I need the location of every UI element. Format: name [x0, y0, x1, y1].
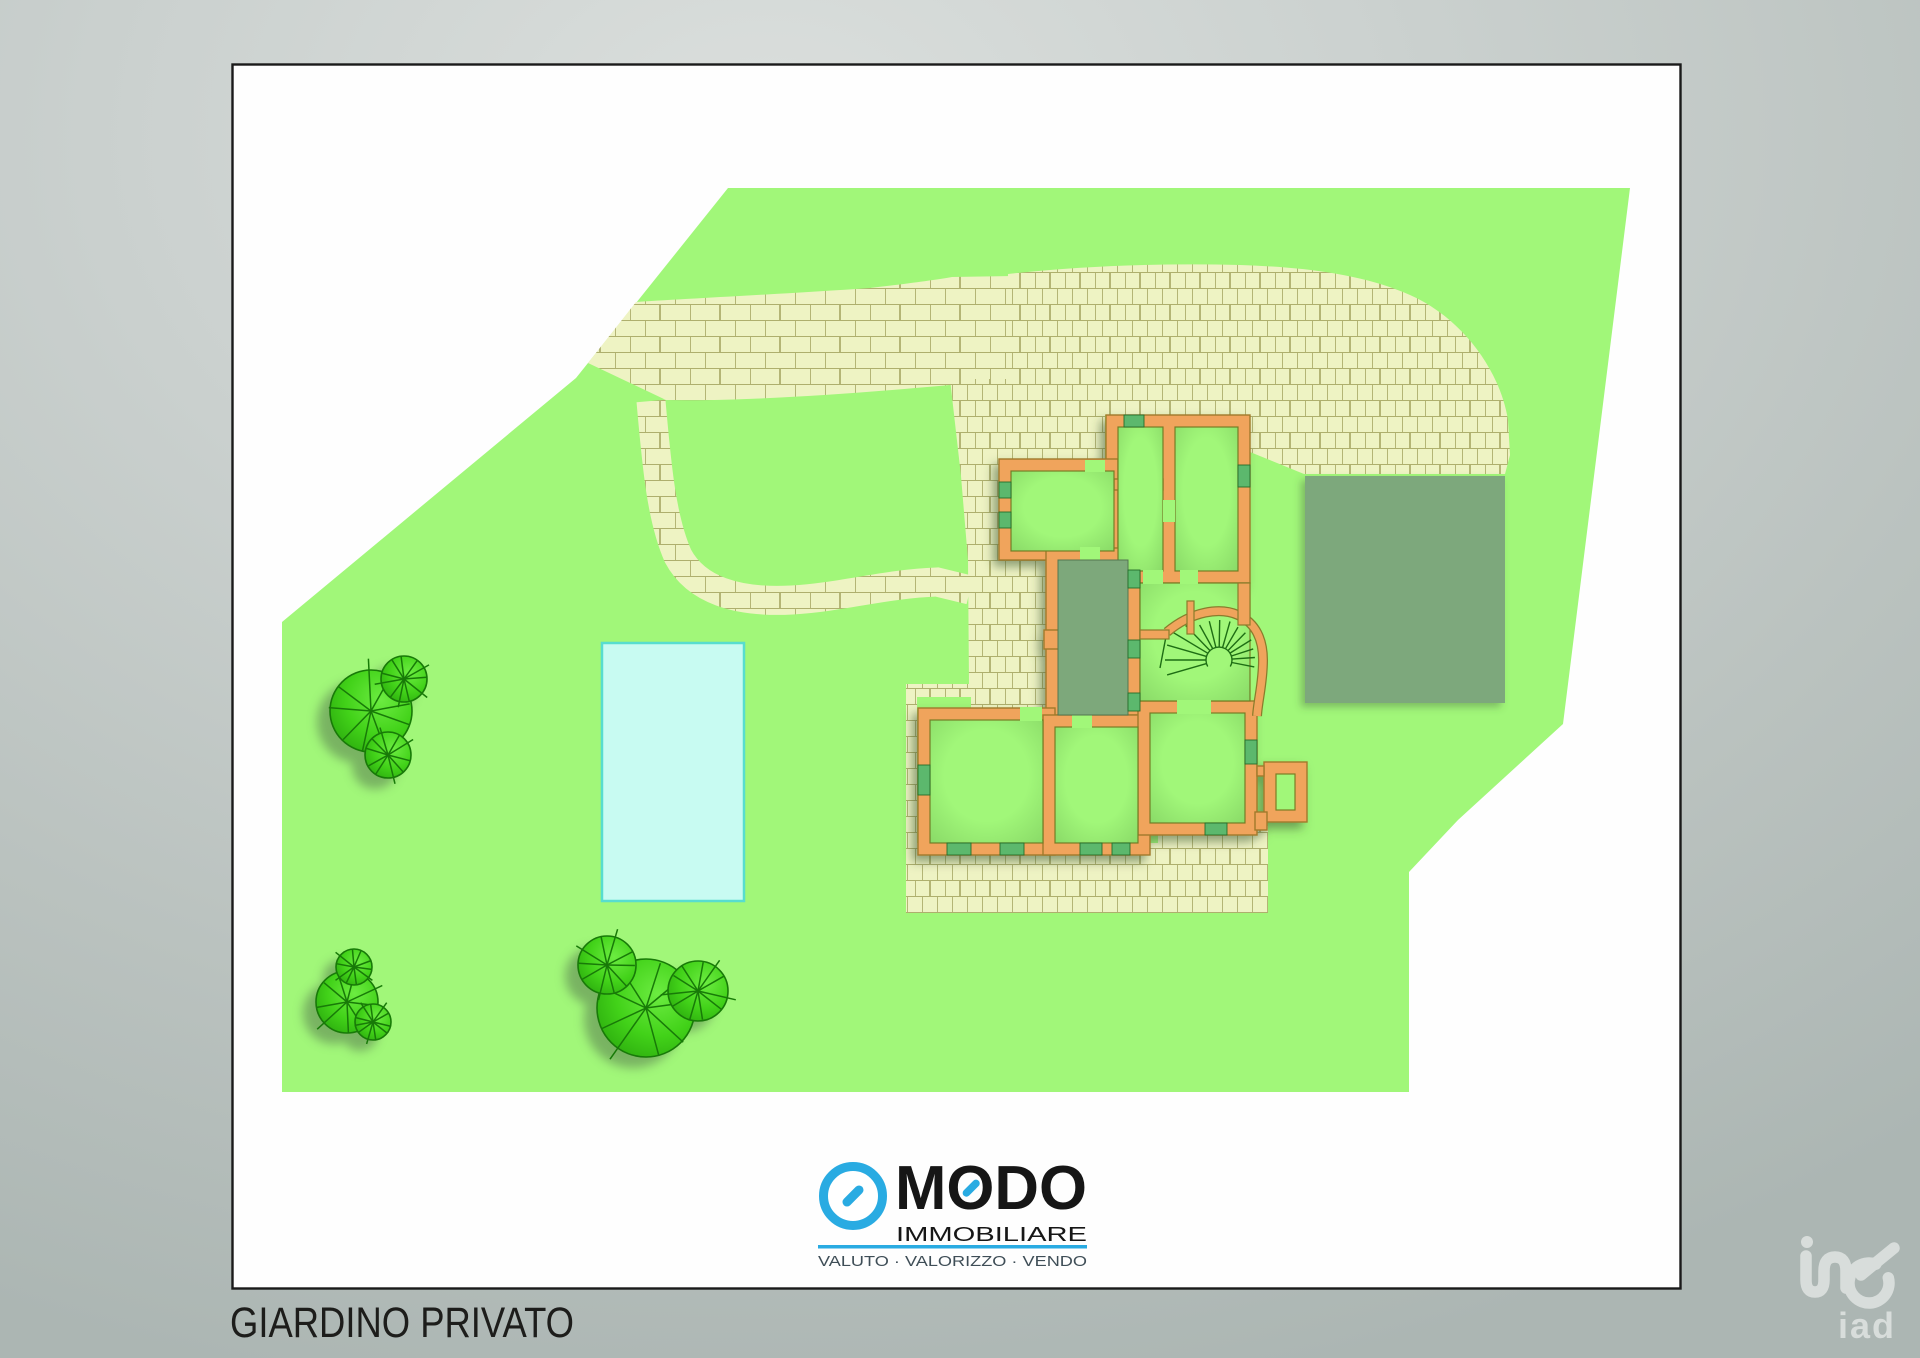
svg-text:VALUTO · VALORIZZO · VENDO: VALUTO · VALORIZZO · VENDO — [818, 1253, 1087, 1270]
svg-text:IMMOBILIARE: IMMOBILIARE — [896, 1224, 1087, 1246]
svg-text:GIARDINO PRIVATO: GIARDINO PRIVATO — [230, 1299, 574, 1347]
svg-text:iad: iad — [1838, 1305, 1896, 1346]
svg-text:MODO: MODO — [895, 1154, 1087, 1223]
